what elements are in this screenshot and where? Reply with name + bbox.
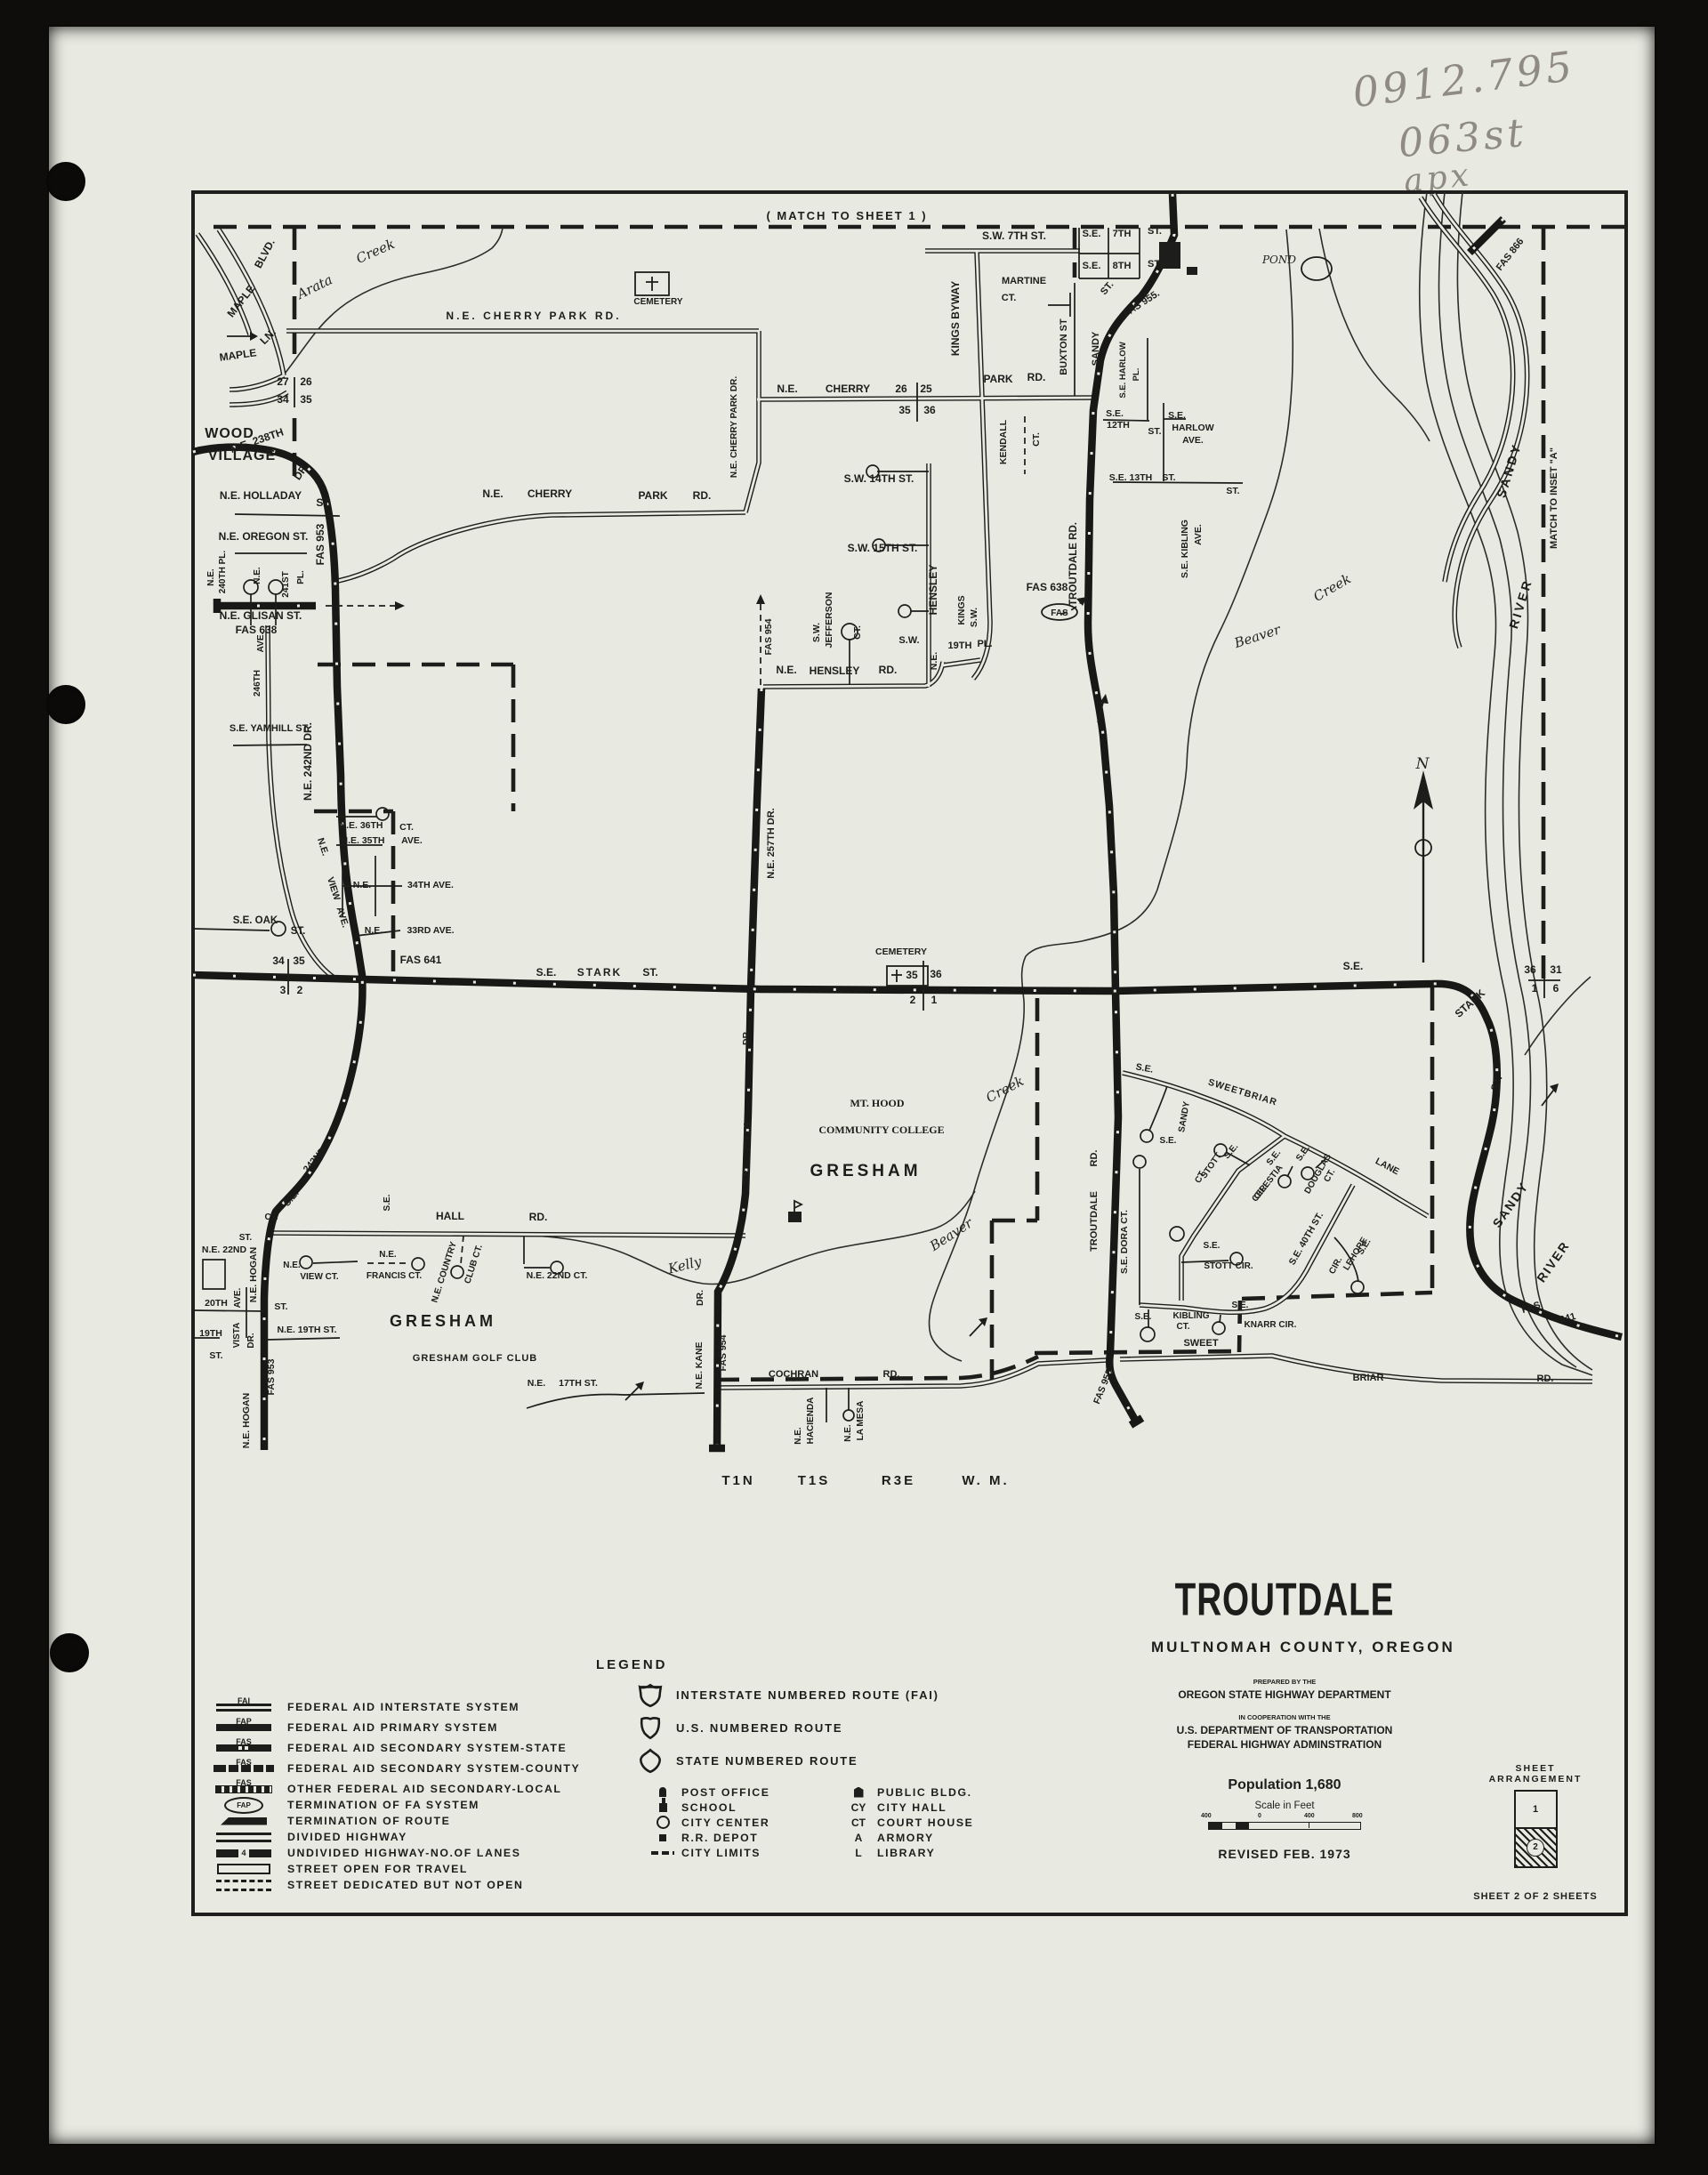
map-label: 34 (272, 955, 285, 967)
map-label: CEMETERY (633, 297, 683, 307)
map-label: N.E. 35TH (341, 835, 384, 846)
map-label: ST. (209, 1350, 222, 1361)
map-geometry (1133, 1156, 1146, 1168)
map-label: PARK (983, 373, 1012, 385)
map-geometry (1351, 1281, 1364, 1293)
map-label: ST. (1148, 226, 1162, 237)
map-label: S.E. 40TH ST. (1287, 1211, 1326, 1268)
route-termination-bars (217, 599, 1142, 1448)
map-label: S.E. (1135, 1061, 1155, 1075)
map-label: Arata (293, 271, 334, 302)
map-label: PL. (296, 570, 306, 584)
map-label: N.E. HOGAN (241, 1393, 252, 1448)
map-label: S.E. (1083, 229, 1101, 239)
undivided-symbol-icon: 4 (216, 1849, 271, 1857)
map-label: CHERRY (528, 487, 572, 500)
map-label: 36 (923, 404, 936, 416)
map-label: N.E. KANE (694, 1341, 705, 1389)
legend-item: FAPTERMINATION OF FA SYSTEM (211, 1799, 580, 1811)
school-flag-icon (794, 1201, 802, 1212)
map-label: AVE. (256, 632, 266, 652)
map-label: N.E. (794, 1427, 803, 1445)
map-geometry (194, 929, 270, 930)
map-label: N.E. (206, 568, 216, 586)
map-geometry (843, 1410, 854, 1421)
map-label: N.E. 19TH ST. (277, 1325, 336, 1335)
map-label: CT. (265, 1212, 278, 1222)
map-label: DR. (741, 1029, 752, 1045)
map-label: S.E. KIBLING (1180, 520, 1190, 578)
map-label: 25 (920, 383, 932, 395)
legend-point-item: CITY LIMITS (651, 1845, 770, 1860)
map-geometry (451, 1266, 463, 1278)
legend-abbr: A (847, 1832, 870, 1844)
map-label: VIEW CT. (300, 1272, 339, 1282)
map-label: Creek (983, 1073, 1027, 1106)
map-label: 36 (1524, 963, 1536, 976)
legend-item: FASFEDERAL AID SECONDARY SYSTEM-STATE (211, 1742, 580, 1754)
legend-item-label: TERMINATION OF FA SYSTEM (287, 1799, 479, 1811)
map-label: 7TH (1113, 229, 1132, 239)
cemetery-cross-icon (646, 277, 658, 291)
scale-label: Scale in Feet (1151, 1800, 1418, 1811)
term-fa-symbol-icon: FAP (224, 1797, 263, 1814)
map-label: S.E. (1083, 261, 1101, 271)
map-label: ST. (642, 966, 657, 979)
map-label: N.E. CHERRY PARK RD. (446, 310, 621, 322)
legend-route-tag: FAP (236, 1717, 252, 1726)
legend-point-item: LLIBRARY (847, 1845, 973, 1860)
legend-point-symbols-a: POST OFFICESCHOOLCITY CENTERR.R. DEPOTCI… (651, 1784, 770, 1860)
legend-point-item: AARMORY (847, 1830, 973, 1845)
map-label: RD. (1537, 1373, 1554, 1384)
map-label: N.E. (776, 664, 796, 676)
public-bldg-icon (854, 1787, 864, 1798)
term-route-symbol-icon (221, 1817, 267, 1825)
map-label: FAS 638 (1027, 581, 1068, 593)
map-label: 1 (1532, 982, 1538, 995)
map-geometry (1213, 1322, 1225, 1334)
legend-abbr: CT (847, 1817, 870, 1829)
map-label: N.E. (379, 1250, 397, 1260)
map-label: FAS 641 (400, 954, 442, 966)
legend-item-label: TERMINATION OF ROUTE (287, 1815, 450, 1827)
map-label: N.E. OREGON ST. (219, 530, 309, 543)
map-label: N.E. 36TH (339, 820, 383, 831)
map-label: Creek (354, 236, 398, 267)
legend-item: FAPFEDERAL AID PRIMARY SYSTEM (211, 1721, 580, 1734)
map-geometry (1149, 1086, 1167, 1131)
sheet-arrangement-line2: ARRANGEMENT (1470, 1774, 1601, 1784)
map-label: ST. (316, 496, 331, 509)
map-label: Kelly (665, 1253, 703, 1277)
map-label: DR. (246, 1333, 256, 1348)
fhwa-line: FEDERAL HIGHWAY ADMINSTRATION (1151, 1738, 1418, 1751)
flow-arrow-icon (756, 594, 765, 604)
map-label: KINGS BYWAY (949, 281, 962, 356)
map-label: ( MATCH TO SHEET 1 ) (766, 209, 927, 222)
map-label: ST. (1148, 259, 1162, 270)
map-geometry (1439, 192, 1577, 1367)
map-label: GRESHAM (390, 1312, 496, 1330)
map-label: S.W. 7TH ST. (982, 230, 1046, 242)
map-label: S.W. 14TH ST. (844, 472, 914, 485)
map-label: Beaver (1231, 621, 1283, 651)
map-label: S.W. (969, 608, 979, 627)
map-label: CT. (1177, 1322, 1190, 1332)
map-label: S.W. (811, 623, 822, 642)
legend-point-item: PUBLIC BLDG. (847, 1784, 973, 1800)
map-label: R3E (882, 1473, 915, 1488)
sheet-cell-1: 1 (1516, 1792, 1556, 1829)
legend-item-label: FEDERAL AID SECONDARY SYSTEM-STATE (287, 1742, 567, 1754)
legend-point-label: COURT HOUSE (877, 1817, 973, 1829)
map-label: 257TH (742, 1123, 753, 1151)
city-center-icon (657, 1816, 670, 1829)
scale-tick: 0 (1258, 1813, 1261, 1819)
map-label: W. M. (962, 1473, 1009, 1488)
map-label: 6 (1553, 982, 1559, 995)
map-label: MARTINE (1002, 276, 1046, 286)
map-label: 26 (895, 383, 907, 395)
map-label: MT. HOOD (850, 1097, 904, 1109)
map-geometry (412, 1258, 424, 1270)
map-label: 35 (898, 404, 911, 416)
map-label: N.E. COUNTRY (430, 1240, 459, 1304)
map-label: ST. (1226, 486, 1239, 496)
flow-arrow-icon (250, 332, 258, 341)
map-label: LA MESA (856, 1401, 866, 1441)
map-label: MAPLE (219, 346, 258, 364)
map-geometry (757, 398, 1096, 399)
map-label: 240TH PL. (218, 551, 228, 594)
map-geometry (898, 605, 911, 617)
legend-route-tag: FAS (236, 1758, 252, 1767)
map-label: PL. (977, 639, 992, 649)
agency-line: OREGON STATE HIGHWAY DEPARTMENT (1151, 1688, 1418, 1701)
legend-point-item: CYCITY HALL (847, 1800, 973, 1815)
map-label: N.E. (253, 567, 262, 584)
map-label: N.E. 257TH DR. (766, 808, 777, 878)
map-label: ST. (1162, 472, 1175, 483)
map-label: 35 (293, 955, 305, 967)
school-icon (788, 1212, 802, 1222)
cemetery-cross-icon (891, 970, 902, 982)
map-geometry (1048, 293, 1070, 317)
legend-route-item: INTERSTATE NUMBERED ROUTE (FAI) (637, 1681, 939, 1708)
map-label: FAS 954 (763, 618, 774, 655)
map-label: ST. (291, 926, 306, 937)
scale-tick: 400 (1201, 1813, 1212, 1819)
legend-item: FASFEDERAL AID SECONDARY SYSTEM-COUNTY (211, 1762, 580, 1775)
map-geometry (1421, 197, 1513, 582)
fas-state-symbol-icon (216, 1744, 271, 1752)
map-label: GRESHAM (810, 1162, 921, 1180)
map-label: FAS (1051, 608, 1068, 618)
map-label: BRIAR (1353, 1373, 1384, 1383)
map-label: CT. (399, 822, 414, 833)
map-label: CEMETERY (875, 947, 927, 957)
map-label: RD. (1089, 1150, 1100, 1167)
legend-point-symbols-b: PUBLIC BLDG.CYCITY HALLCTCOURT HOUSEAARM… (847, 1784, 973, 1860)
legend-item-label: FEDERAL AID SECONDARY SYSTEM-COUNTY (287, 1762, 580, 1775)
revised-line: REVISED FEB. 1973 (1151, 1847, 1418, 1861)
population-line: Population 1,680 (1151, 1777, 1418, 1793)
school-icon (659, 1803, 667, 1812)
map-label: S.E. DORA CT. (1119, 1210, 1130, 1274)
scale-bar-tickmark (1309, 1822, 1309, 1828)
map-label: S.E. (1160, 1136, 1177, 1146)
sheet-count-footer: SHEET 2 OF 2 SHEETS (1470, 1891, 1601, 1902)
map-label: N.E. (929, 652, 939, 671)
legend-route-label: INTERSTATE NUMBERED ROUTE (FAI) (676, 1688, 939, 1702)
legend-route-item: U.S. NUMBERED ROUTE (637, 1714, 939, 1741)
map-label: 36 (930, 968, 942, 980)
map-label: ST. (1099, 279, 1116, 297)
map-label: SANDY (1489, 1179, 1531, 1230)
flow-arrow-icon (227, 336, 1556, 1400)
map-geometry (1242, 1293, 1432, 1299)
map-label: TROUTDALE RD. (1068, 522, 1079, 606)
map-label: STARK (577, 966, 622, 979)
map-geometry (717, 689, 761, 1448)
map-label: 34TH AVE. (407, 880, 454, 890)
map-label: N (1415, 755, 1430, 773)
map-label: S.E. 13TH (1109, 472, 1152, 483)
map-label: SANDY (1177, 1100, 1192, 1133)
rr-depot-icon (659, 1834, 666, 1841)
map-label: 17TH ST. (559, 1378, 598, 1389)
map-label: MATCH TO INSET "A" (1549, 447, 1559, 549)
map-label: AVE. (1193, 524, 1204, 545)
map-geometry (193, 975, 1622, 1337)
map-label: N.E. (315, 837, 331, 858)
map-label: CT. (1002, 293, 1017, 303)
legend-item-label: FEDERAL AID PRIMARY SYSTEM (287, 1721, 498, 1734)
legend-item-label: FEDERAL AID INTERSTATE SYSTEM (287, 1701, 520, 1713)
map-label: TROUTDALE (1089, 1191, 1100, 1252)
legend-item-label: DIVIDED HIGHWAY (287, 1831, 407, 1843)
legend-item: FAIFEDERAL AID INTERSTATE SYSTEM (211, 1701, 580, 1713)
scale-tick: 400 (1304, 1813, 1315, 1819)
map-label: FAS 955 (1092, 1368, 1115, 1406)
map-label: HENSLEY (810, 665, 860, 677)
map-label: N.E. (777, 383, 797, 395)
cooperation-line: IN COOPERATION WITH THE (1151, 1713, 1418, 1721)
map-label: RD. (1027, 371, 1046, 383)
map-label: HALL (436, 1210, 464, 1222)
map-label: S.E. (1204, 1241, 1221, 1251)
map-geometry (193, 975, 1622, 1337)
map-label: N.E. CHERRY PARK DR. (729, 376, 739, 478)
map-label: N.E. (528, 1378, 546, 1389)
map-geometry (826, 1388, 849, 1422)
map-label: ST. (1148, 426, 1161, 437)
legend-item-label: STREET DEDICATED BUT NOT OPEN (287, 1879, 523, 1891)
legend-point-item: POST OFFICE (651, 1784, 770, 1800)
map-label: SWEET (1183, 1338, 1218, 1349)
map-label: CT. (1031, 432, 1042, 447)
map-label: 27 (277, 375, 289, 388)
map-geometry (235, 514, 340, 516)
map-label: S.E. (1343, 960, 1364, 972)
map-label: ST. (1488, 1074, 1505, 1092)
map-geometry (1140, 1130, 1153, 1142)
legend-abbr: L (847, 1847, 870, 1859)
public-building-block (1187, 267, 1197, 275)
map-label: 33RD AVE. (407, 925, 454, 936)
flow-arrow-icon (1550, 1083, 1559, 1093)
map-label: N.E. (353, 880, 372, 890)
open-symbol-icon (217, 1864, 270, 1874)
map-label: S.E. (536, 966, 557, 979)
map-label: ST. (239, 1233, 253, 1243)
map-label: PL. (1132, 368, 1141, 382)
map-label: S.E. (1106, 408, 1124, 419)
map-label: N.E. GLISAN ST. (220, 609, 302, 622)
legend-point-item: CTCOURT HOUSE (847, 1815, 973, 1830)
map-label: FAS 954 (718, 1334, 729, 1371)
map-geometry (1170, 1227, 1184, 1241)
map-label: N.E. 242ND DR. (302, 722, 314, 801)
map-label: VISTA (232, 1323, 242, 1349)
map-label: RD. (883, 1369, 900, 1380)
legend-item-label: UNDIVIDED HIGHWAY-NO.OF LANES (287, 1847, 521, 1859)
legend-route-tag: FAS (236, 1778, 252, 1787)
legend-item: TERMINATION OF ROUTE (211, 1815, 580, 1827)
map-label: POND (1261, 254, 1296, 266)
title-block: TROUTDALE MULTNOMAH COUNTY, OREGON PREPA… (1151, 1578, 1418, 1861)
usdot-line: U.S. DEPARTMENT OF TRANSPORTATION (1151, 1724, 1418, 1736)
us-shield-icon (637, 1714, 664, 1741)
map-geometry (313, 1261, 358, 1263)
open-streets (197, 194, 1592, 1388)
legend-point-label: PUBLIC BLDG. (877, 1786, 972, 1799)
map-label: T1N (721, 1473, 754, 1488)
map-geometry (338, 512, 745, 581)
flow-arrow-icon (395, 601, 405, 610)
map-geometry (527, 1393, 705, 1408)
legend-item: FASOTHER FEDERAL AID SECONDARY-LOCAL (211, 1783, 580, 1795)
map-label: BLVD. (252, 237, 278, 270)
legend-point-label: CITY LIMITS (681, 1847, 761, 1859)
map-label: AVE. (401, 835, 423, 846)
map-label: STOTT CIR. (1204, 1261, 1253, 1271)
map-label: FRANCIS CT. (367, 1271, 422, 1281)
county-subtitle: MULTNOMAH COUNTY, OREGON (1151, 1639, 1418, 1656)
city-limits-icon (651, 1851, 674, 1855)
map-label: BUXTON ST (1059, 318, 1069, 375)
page-title: TROUTDALE (1167, 1575, 1402, 1627)
legend-point-label: LIBRARY (877, 1847, 935, 1859)
map-label: N.E. HOGAN (248, 1247, 259, 1302)
sheet-arrangement-diagram: 1 2 (1514, 1790, 1558, 1868)
map-label: AVE. (233, 1287, 243, 1308)
legend-point-label: SCHOOL (681, 1801, 737, 1814)
map-label: VIEW (325, 875, 342, 901)
map-label: S.E. (1168, 410, 1186, 421)
post-office-icon (659, 1787, 666, 1797)
map-label: N.E. (482, 487, 503, 500)
legend-point-label: POST OFFICE (681, 1786, 770, 1799)
map-label: AVE. (1182, 435, 1204, 446)
map-label: N.E. 22ND (202, 1245, 247, 1255)
map-geometry (532, 1191, 975, 1285)
map-geometry (233, 745, 307, 745)
map-label: LANE (1374, 1156, 1401, 1177)
map-label: 20TH (205, 1298, 228, 1309)
map-label: Creek (1310, 571, 1353, 605)
map-label: DR. (695, 1290, 705, 1306)
legend-point-label: CITY HALL (877, 1801, 947, 1814)
map-geometry (1278, 1175, 1291, 1188)
legend-route-shields: INTERSTATE NUMBERED ROUTE (FAI)U.S. NUMB… (637, 1681, 939, 1780)
map-label: KINGS (956, 595, 967, 624)
scale-tick: 800 (1352, 1813, 1363, 1819)
map-label: CT. (852, 625, 863, 640)
map-label: S.E. HARLOW (1118, 342, 1128, 398)
map-label: FAS 953 (266, 1358, 277, 1395)
sheet-arrangement: SHEET ARRANGEMENT 1 2 SHEET 2 OF 2 SHEET… (1470, 1763, 1601, 1902)
map-label: N.E. 22ND CT. (527, 1270, 588, 1281)
legend-route-label: U.S. NUMBERED ROUTE (676, 1721, 842, 1735)
legend-point-label: ARMORY (877, 1832, 934, 1844)
map-label: 241ST (281, 571, 291, 597)
map-geometry (376, 808, 389, 820)
map-label: 19TH (199, 1328, 222, 1339)
map-geometry (203, 1260, 225, 1289)
map-label: N.E. (843, 1424, 853, 1442)
sheet-cell-2-number: 2 (1527, 1839, 1544, 1857)
map-label: FAS 953 (314, 523, 326, 565)
interstate-shield-icon (637, 1681, 664, 1708)
scanned-map-sheet: 0912.795 063st apx (0, 0, 1708, 2175)
map-label: 35 (300, 393, 312, 406)
map-label: FAS 866 (1494, 237, 1527, 273)
legend-route-tag: FAI (238, 1696, 250, 1705)
legend-point-item: SCHOOL (651, 1800, 770, 1815)
sheet-cell-2: 2 (1516, 1829, 1556, 1866)
scale-bar: 400 0 400 800 (1208, 1813, 1361, 1833)
map-label: 2 (297, 984, 303, 996)
map-label: 3 (280, 984, 286, 996)
map-label: HACIENDA (806, 1398, 816, 1445)
map-label: N.E. HOLLADAY (220, 489, 302, 502)
map-label: S.E. (1135, 1312, 1152, 1322)
map-label: KNARR CIR. (1245, 1320, 1297, 1330)
prepared-by-line: PREPARED BY THE (1151, 1678, 1418, 1686)
map-label: N.E. (365, 925, 383, 936)
map-label: Beaver (926, 1214, 976, 1254)
legend-item-label: STREET OPEN FOR TRAVEL (287, 1863, 468, 1875)
legend-item: DIVIDED HIGHWAY (211, 1831, 580, 1843)
map-geometry (1434, 194, 1527, 648)
map-label: S.E. OAK (233, 915, 278, 926)
legend-item: STREET DEDICATED BUT NOT OPEN (211, 1879, 580, 1891)
map-geometry (1140, 1185, 1353, 1312)
map-geometry (1035, 1351, 1240, 1353)
map-label: S.E. (383, 1194, 392, 1211)
map-label: GRESHAM GOLF CLUB (413, 1353, 537, 1364)
map-label: 19TH (948, 640, 972, 651)
map-label: KIBLING (1172, 1311, 1209, 1321)
legend-item: STREET OPEN FOR TRAVEL (211, 1863, 580, 1875)
map-label: CLUB CT. (463, 1244, 485, 1285)
map-label: S.W. (898, 635, 919, 646)
legend-point-label: R.R. DEPOT (681, 1832, 758, 1844)
g-open-overlay (197, 194, 1592, 1388)
legend-point-item: CITY CENTER (651, 1815, 770, 1830)
